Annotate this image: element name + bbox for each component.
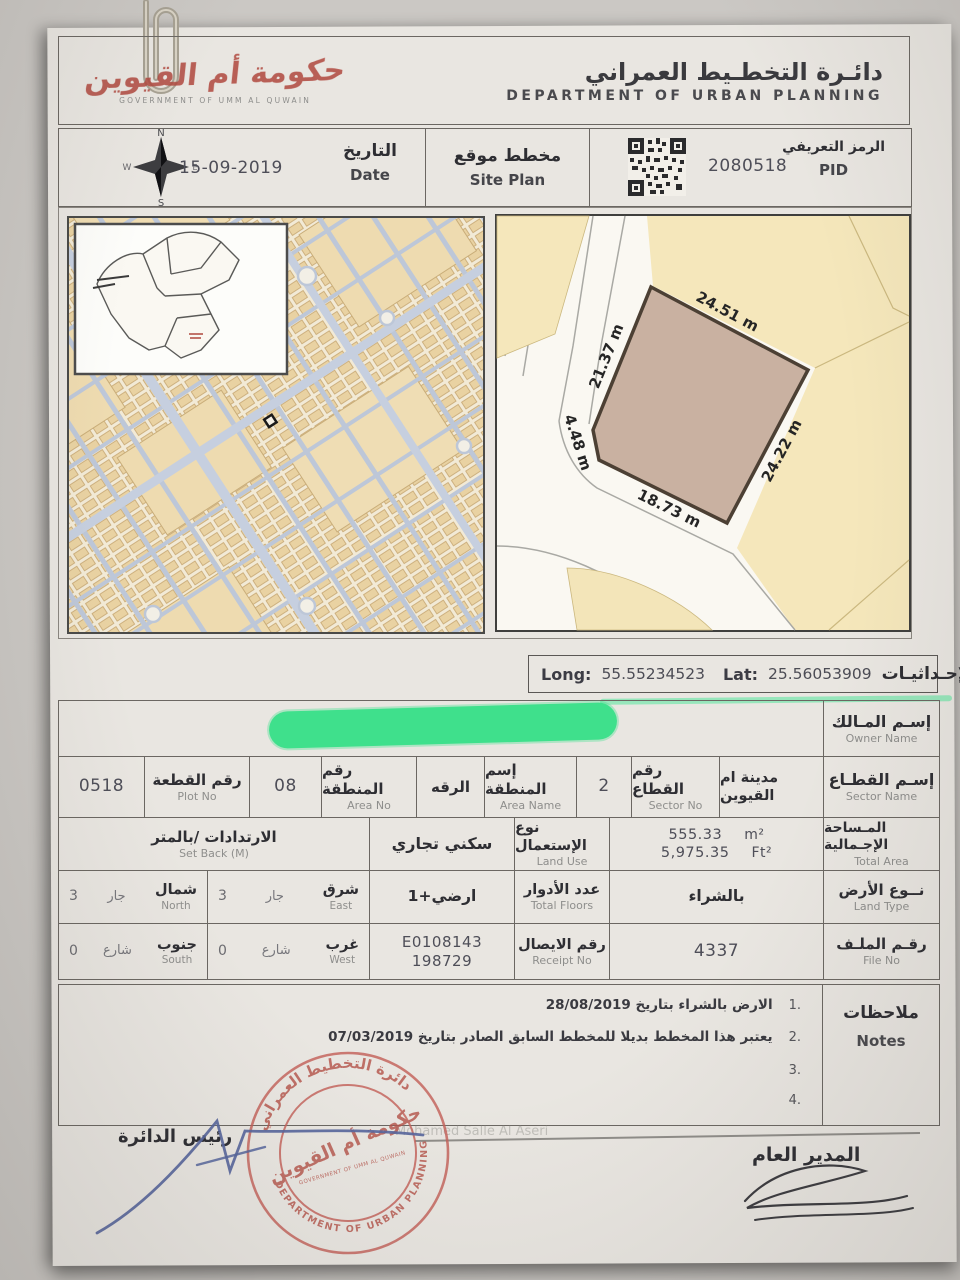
plot-no-label: رقم القطعةPlot No (144, 757, 249, 817)
svg-text:N: N (157, 128, 164, 139)
dark-signature (735, 1156, 925, 1246)
site-plan-drawing: 24.51 m 24.22 m 18.73 m 4.48 m 21.37 m (497, 216, 909, 630)
note-item-3: 3. (79, 1063, 801, 1078)
owner-name-redaction (269, 702, 618, 749)
south-west-row: 0شارع جنوبSouth 0شارع غربWest E0108143 1… (59, 923, 939, 979)
maps-section: 24.51 m 24.22 m 18.73 m 4.48 m 21.37 m (58, 207, 912, 639)
area-name-label: إسم المنطقةArea Name (484, 757, 576, 817)
emirate-inset-map (75, 224, 287, 374)
site-plan-panel: 24.51 m 24.22 m 18.73 m 4.48 m 21.37 m (495, 214, 911, 632)
government-logo: حكومة أم القيوين GOVERNMENT OF UMM AL QU… (85, 57, 345, 105)
pid-label-english: PID (819, 161, 848, 180)
date-label-arabic: التاريخ (343, 141, 397, 162)
land-type-label: نــوع الأرضLand Type (823, 871, 939, 923)
department-title-english: DEPARTMENT OF URBAN PLANNING (506, 88, 883, 104)
date-label: التاريخ Date (343, 141, 397, 185)
notes-label-english: Notes (856, 1032, 905, 1051)
area-no-value: 08 (249, 757, 321, 817)
landuse-row: الارتدادات /بالمترSet Back (M) سكني تجار… (59, 817, 939, 870)
area-name-value: الرقه (416, 757, 484, 817)
land-use-value: سكني تجاري (369, 818, 514, 870)
location-map (69, 218, 483, 632)
qr-code (628, 138, 686, 196)
sector-no-value: 2 (576, 757, 631, 817)
floors-label: عدد الأدوارTotal Floors (514, 871, 609, 923)
owner-label-cell: إسـم المـالك Owner Name (823, 701, 939, 756)
receipt-label: رقم الايصالReceipt No (514, 924, 609, 979)
floors-value: ارضي+1 (369, 871, 514, 923)
setback-north-cell: 3جار شمالNorth (59, 871, 207, 923)
coordinates-label-arabic: الإحـداثيـات (882, 664, 960, 684)
pid-cell: 2080518 الرمز التعريفي PID (589, 129, 911, 206)
coordinates-bar: Long: 55.55234523 Lat: 25.56053909 الإحـ… (528, 655, 938, 693)
owner-row: إسـم المـالك Owner Name (59, 701, 939, 756)
sector-name-label: إسـم القطـاعSector Name (823, 757, 939, 817)
sector-no-label: رقم القطاعSector No (631, 757, 719, 817)
date-label-english: Date (350, 166, 390, 185)
notes-label-arabic: ملاحظات (843, 1003, 919, 1024)
owner-label-english: Owner Name (846, 732, 918, 746)
setback-east-cell: 3جار شرقEast (207, 871, 369, 923)
latitude-label: Lat: (723, 665, 758, 684)
department-title-arabic: دائـرة التخطـيط العمراني (506, 58, 883, 86)
scanned-site-plan-photo: حكومة أم القيوين GOVERNMENT OF UMM AL QU… (0, 0, 960, 1280)
notes-label: ملاحظات Notes (823, 1003, 939, 1051)
owner-value-cell (59, 701, 823, 756)
setback-south-cell: 0شارع جنوبSouth (59, 924, 207, 979)
setback-header: الارتدادات /بالمترSet Back (M) (59, 818, 369, 870)
government-logo-arabic: حكومة أم القيوين (83, 52, 347, 96)
land-type-value: بالشراء (609, 871, 823, 923)
file-no-value: 4337 (609, 924, 823, 979)
file-no-label: رقـم الملـفFile No (823, 924, 939, 979)
location-map-panel (67, 216, 485, 634)
total-area-value: 555.33m² 5,975.35Ft² (609, 818, 823, 870)
document-header: حكومة أم القيوين GOVERNMENT OF UMM AL QU… (58, 36, 910, 125)
plot-no-value: 0518 (59, 757, 144, 817)
plot-info-row: 0518 رقم القطعةPlot No 08 رقم المنطقةAre… (59, 756, 939, 817)
department-title: دائـرة التخطـيط العمراني DEPARTMENT OF U… (506, 58, 883, 104)
pid-label: الرمز التعريفي PID (782, 139, 885, 179)
latitude-value: 25.56053909 (768, 665, 872, 683)
government-logo-english: GOVERNMENT OF UMM AL QUWAIN (119, 96, 311, 105)
date-cell: N S W E 15-09-2019 التاريخ Date (59, 129, 425, 206)
plot-details-table: إسـم المـالك Owner Name 0518 رقم القطعةP… (58, 700, 940, 980)
doc-type-cell: مخطط موقع Site Plan (425, 129, 589, 206)
longitude-value: 55.55234523 (601, 665, 705, 683)
doc-type-arabic: مخطط موقع (454, 146, 561, 167)
owner-label-arabic: إسـم المـالك (832, 712, 931, 732)
longitude-label: Long: (541, 665, 591, 684)
document-content: حكومة أم القيوين GOVERNMENT OF UMM AL QU… (0, 0, 960, 1280)
north-east-row: 3جار شمالNorth 3جار شرقEast ارضي+1 عدد ا… (59, 870, 939, 923)
doc-type-english: Site Plan (470, 171, 545, 190)
meta-row: N S W E 15-09-2019 التاريخ Date مخطط موق… (58, 128, 912, 207)
total-area-label: المـساحة الإجـماليةTotal Area (823, 818, 939, 870)
pid-value: 2080518 (708, 156, 787, 176)
pid-label-arabic: الرمز التعريفي (782, 139, 885, 157)
setback-west-cell: 0شارع غربWest (207, 924, 369, 979)
receipt-value: E0108143 198729 (369, 924, 514, 979)
svg-text:W: W (123, 163, 132, 173)
land-use-label: نوع الإستعمالLand Use (514, 818, 609, 870)
note-item-2: 2. يعتبر هذا المخطط بديلا للمخطط السابق … (79, 1029, 801, 1045)
blue-signature (85, 1105, 440, 1245)
sector-name-value: مدينة ام القيوين (719, 757, 823, 817)
note-item-1: 1. الارض بالشراء بتاريخ 28/08/2019 (79, 997, 801, 1013)
area-no-label: رقم المنطقةArea No (321, 757, 416, 817)
date-value: 15-09-2019 (179, 158, 283, 178)
